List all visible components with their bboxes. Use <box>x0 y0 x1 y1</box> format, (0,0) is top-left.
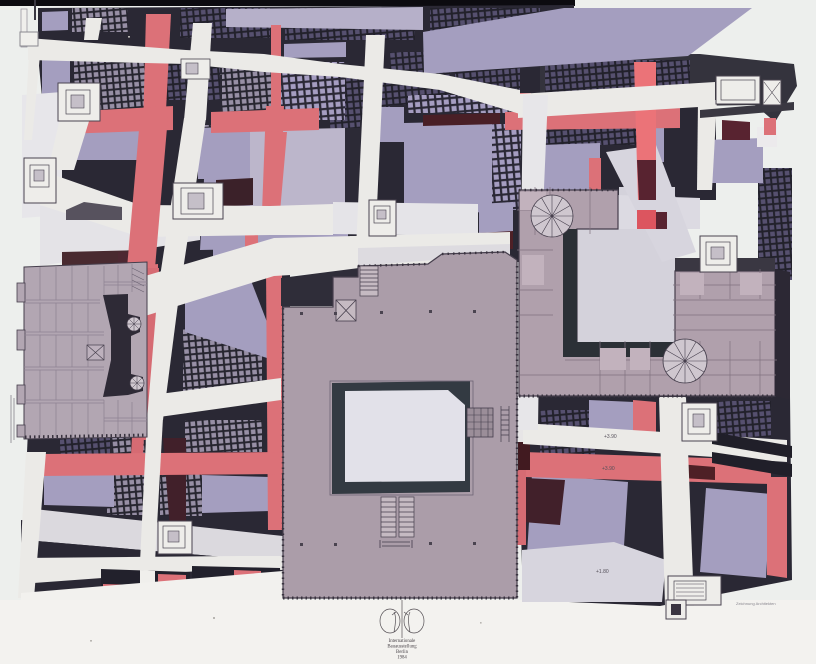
svg-text:+3.90: +3.90 <box>602 466 615 472</box>
svg-text:Berlin: Berlin <box>396 650 409 655</box>
svg-text:Bauausstellung: Bauausstellung <box>387 645 417 650</box>
svg-text:Zeichnung Architekten: Zeichnung Architekten <box>736 601 776 606</box>
svg-text:Internationale: Internationale <box>389 639 416 644</box>
svg-text:1984: 1984 <box>397 656 407 661</box>
svg-text:+1.80: +1.80 <box>596 569 609 575</box>
svg-text:+3.90: +3.90 <box>604 434 617 440</box>
